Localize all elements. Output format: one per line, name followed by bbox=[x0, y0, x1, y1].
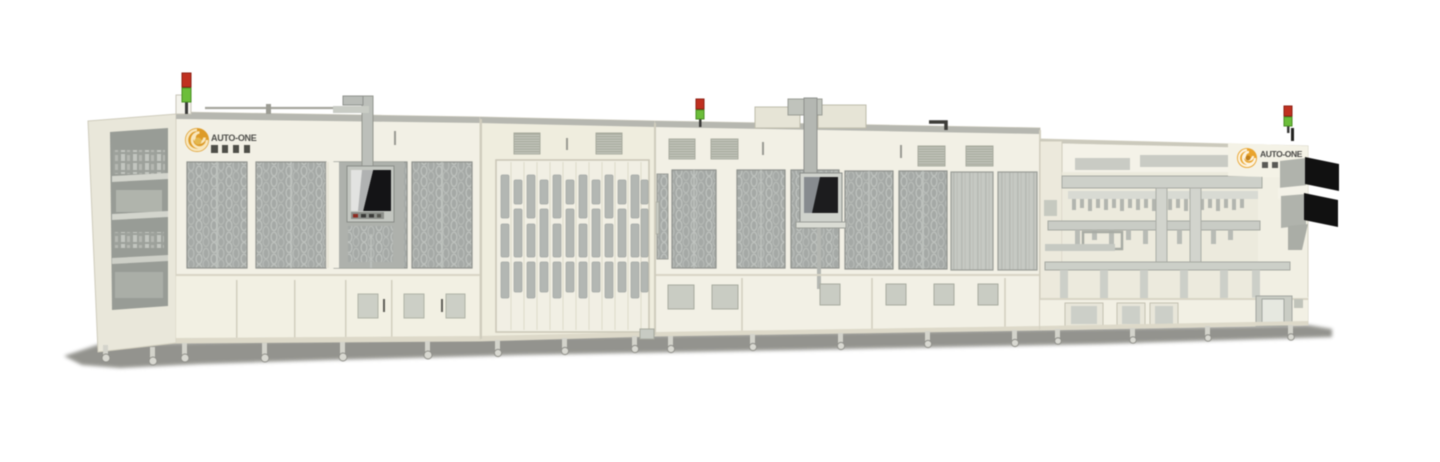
svg-text:AUTO-ONE: AUTO-ONE bbox=[211, 133, 257, 143]
svg-text:AUTO-ONE: AUTO-ONE bbox=[1260, 149, 1303, 159]
